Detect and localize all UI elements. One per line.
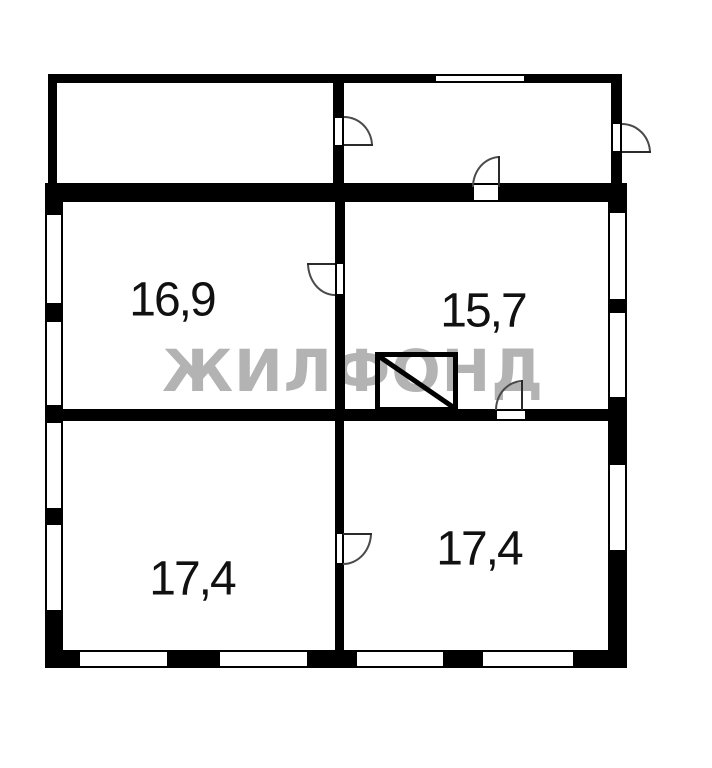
wall-segment bbox=[443, 650, 483, 668]
window bbox=[45, 525, 63, 610]
wall-segment bbox=[524, 74, 622, 83]
window bbox=[45, 215, 63, 303]
stove-diagonal-line bbox=[380, 357, 453, 407]
wall-segment bbox=[527, 409, 608, 421]
floor-plan: ЖИЛФОНД bbox=[0, 0, 712, 768]
wall-segment bbox=[335, 421, 344, 532]
window bbox=[608, 213, 627, 299]
door-swing-arc-icon bbox=[344, 116, 373, 146]
wall-segment bbox=[611, 83, 622, 122]
door-open-leaf-line bbox=[521, 380, 523, 410]
window bbox=[45, 322, 63, 405]
window bbox=[436, 74, 524, 83]
wall-segment bbox=[333, 83, 344, 116]
door-open-leaf-line bbox=[622, 151, 651, 153]
watermark: ЖИЛФОНД bbox=[162, 337, 544, 405]
wall-segment bbox=[45, 508, 63, 525]
door-leaf bbox=[495, 409, 527, 421]
room-area-label: 17,4 bbox=[149, 552, 234, 607]
wall-segment bbox=[611, 153, 622, 183]
wall-segment bbox=[45, 303, 63, 322]
door-swing-arc-icon bbox=[622, 123, 651, 153]
door-swing-arc-icon bbox=[343, 533, 372, 565]
window bbox=[483, 650, 573, 668]
room-area-label: 15,7 bbox=[440, 284, 525, 339]
window bbox=[357, 650, 443, 668]
wall-segment bbox=[608, 299, 627, 313]
wall-segment bbox=[573, 650, 627, 668]
wall-segment bbox=[500, 183, 627, 202]
door-open-leaf-line bbox=[343, 533, 372, 535]
window bbox=[608, 313, 627, 397]
wall-segment bbox=[45, 405, 63, 423]
door-open-leaf-line bbox=[307, 263, 335, 265]
stove-icon bbox=[375, 352, 458, 412]
door-open-leaf-line bbox=[344, 144, 373, 146]
door-swing-arc-icon bbox=[472, 156, 500, 187]
wall-segment bbox=[45, 650, 80, 668]
wall-segment bbox=[335, 202, 345, 262]
wall-segment bbox=[608, 397, 627, 465]
wall-segment bbox=[48, 83, 57, 183]
door-swing-arc-icon bbox=[307, 263, 335, 296]
window bbox=[80, 650, 167, 668]
wall-segment bbox=[307, 650, 357, 668]
wall-segment bbox=[45, 202, 63, 215]
window bbox=[608, 465, 627, 550]
room-area-label: 17,4 bbox=[436, 522, 521, 577]
door-leaf bbox=[333, 116, 344, 147]
door-leaf bbox=[611, 122, 622, 153]
wall-segment bbox=[167, 650, 220, 668]
wall-segment bbox=[48, 74, 436, 83]
room-area-label: 16,9 bbox=[129, 273, 214, 328]
wall-segment bbox=[335, 296, 345, 409]
door-leaf bbox=[335, 262, 345, 296]
wall-segment bbox=[608, 202, 627, 213]
window bbox=[45, 423, 63, 508]
wall-segment bbox=[335, 565, 344, 650]
wall-segment bbox=[333, 147, 344, 183]
window bbox=[220, 650, 307, 668]
wall-segment bbox=[45, 183, 472, 202]
door-open-leaf-line bbox=[498, 156, 500, 187]
